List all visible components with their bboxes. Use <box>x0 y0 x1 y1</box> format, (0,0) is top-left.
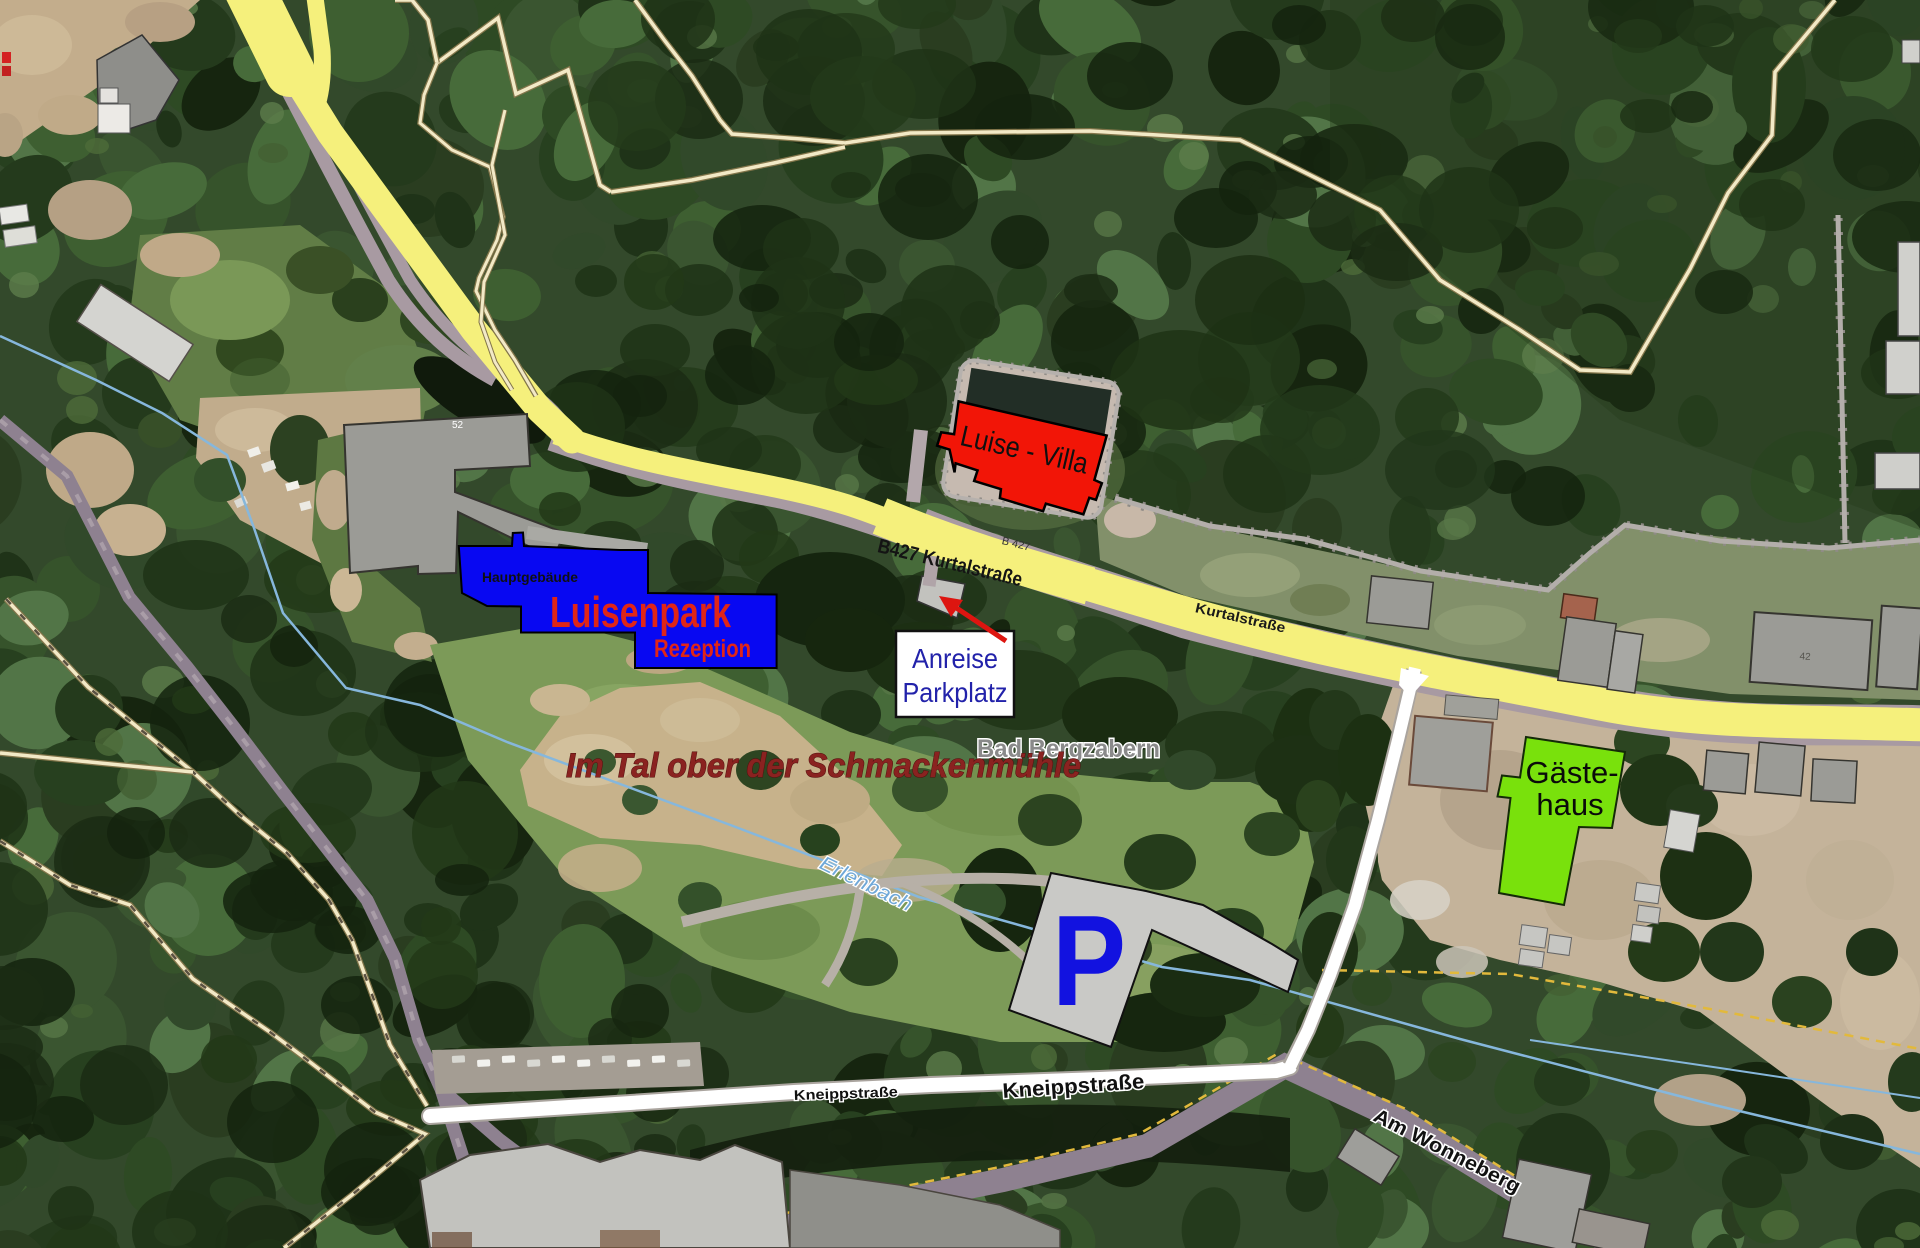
svg-text:52: 52 <box>452 420 464 431</box>
svg-text:Gäste-: Gäste- <box>1525 755 1618 790</box>
svg-text:P: P <box>1052 889 1126 1033</box>
svg-text:Hauptgebäude: Hauptgebäude <box>482 569 578 585</box>
svg-text:Rezeption: Rezeption <box>654 635 751 663</box>
svg-text:Anreise: Anreise <box>912 643 998 674</box>
svg-text:haus: haus <box>1536 787 1603 822</box>
svg-text:Parkplatz: Parkplatz <box>903 677 1008 708</box>
svg-text:42: 42 <box>1799 651 1811 663</box>
svg-text:Im Tal ober der Schmackenmühle: Im Tal ober der Schmackenmühle <box>566 747 1081 785</box>
svg-text:Luisenpark: Luisenpark <box>550 588 731 637</box>
